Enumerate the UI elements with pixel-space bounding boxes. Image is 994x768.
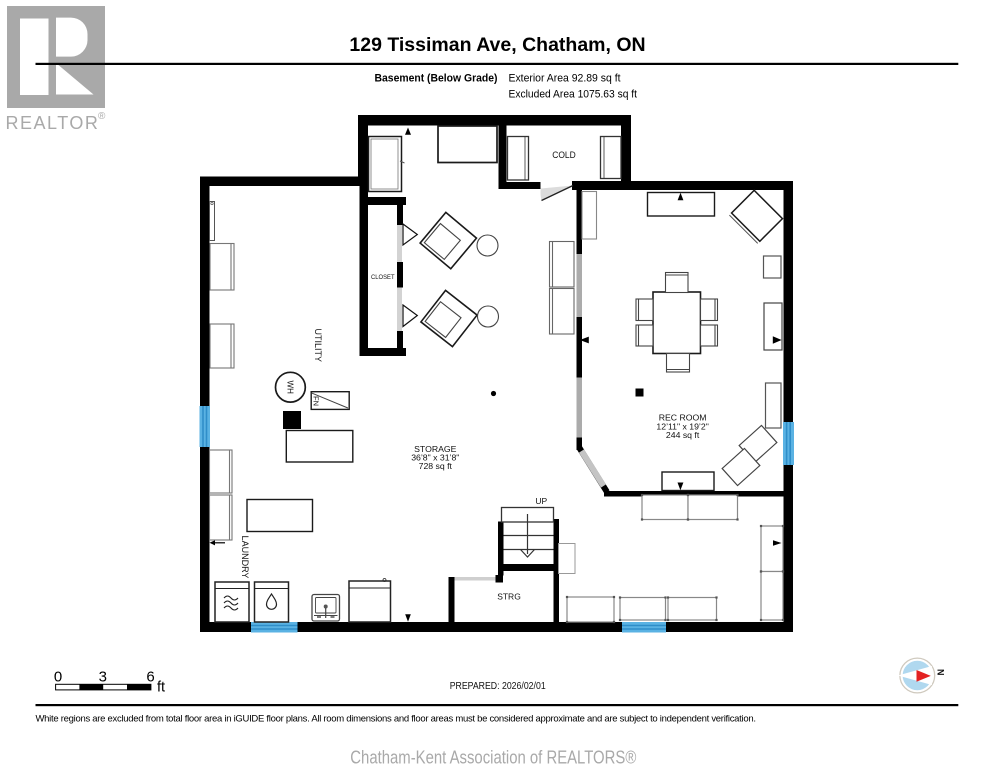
svg-text:Excluded Area 1075.63 sq ft: Excluded Area 1075.63 sq ft xyxy=(509,89,638,101)
svg-text:Basement (Below Grade): Basement (Below Grade) xyxy=(375,72,498,84)
svg-text:3: 3 xyxy=(99,669,107,686)
svg-text:UP: UP xyxy=(535,496,547,506)
svg-text:LAUNDRY: LAUNDRY xyxy=(240,536,250,579)
svg-text:®: ® xyxy=(98,111,106,122)
svg-text:REALTOR: REALTOR xyxy=(6,113,100,133)
svg-text:129 Tissiman Ave, Chatham, ON: 129 Tissiman Ave, Chatham, ON xyxy=(349,34,645,56)
svg-text:6: 6 xyxy=(146,669,154,686)
svg-text:N: N xyxy=(935,669,945,676)
svg-text:CLOSET: CLOSET xyxy=(371,274,395,281)
svg-text:FN: FN xyxy=(312,396,321,406)
svg-text:244 sq ft: 244 sq ft xyxy=(666,430,700,440)
svg-text:ft: ft xyxy=(157,680,165,696)
svg-text:Exterior Area 92.89 sq ft: Exterior Area 92.89 sq ft xyxy=(509,72,622,84)
svg-text:PREPARED: 2026/02/01: PREPARED: 2026/02/01 xyxy=(450,681,546,692)
svg-text:STRG: STRG xyxy=(497,592,521,602)
svg-text:White regions are excluded fro: White regions are excluded from total fl… xyxy=(36,714,757,725)
svg-text:Chatham-Kent Association of RE: Chatham-Kent Association of REALTORS® xyxy=(350,747,636,768)
svg-text:UTILITY: UTILITY xyxy=(313,329,323,363)
svg-text:COLD: COLD xyxy=(552,150,576,161)
svg-text:728 sq ft: 728 sq ft xyxy=(419,461,453,471)
svg-text:0: 0 xyxy=(54,669,62,686)
svg-text:WH: WH xyxy=(286,381,295,395)
